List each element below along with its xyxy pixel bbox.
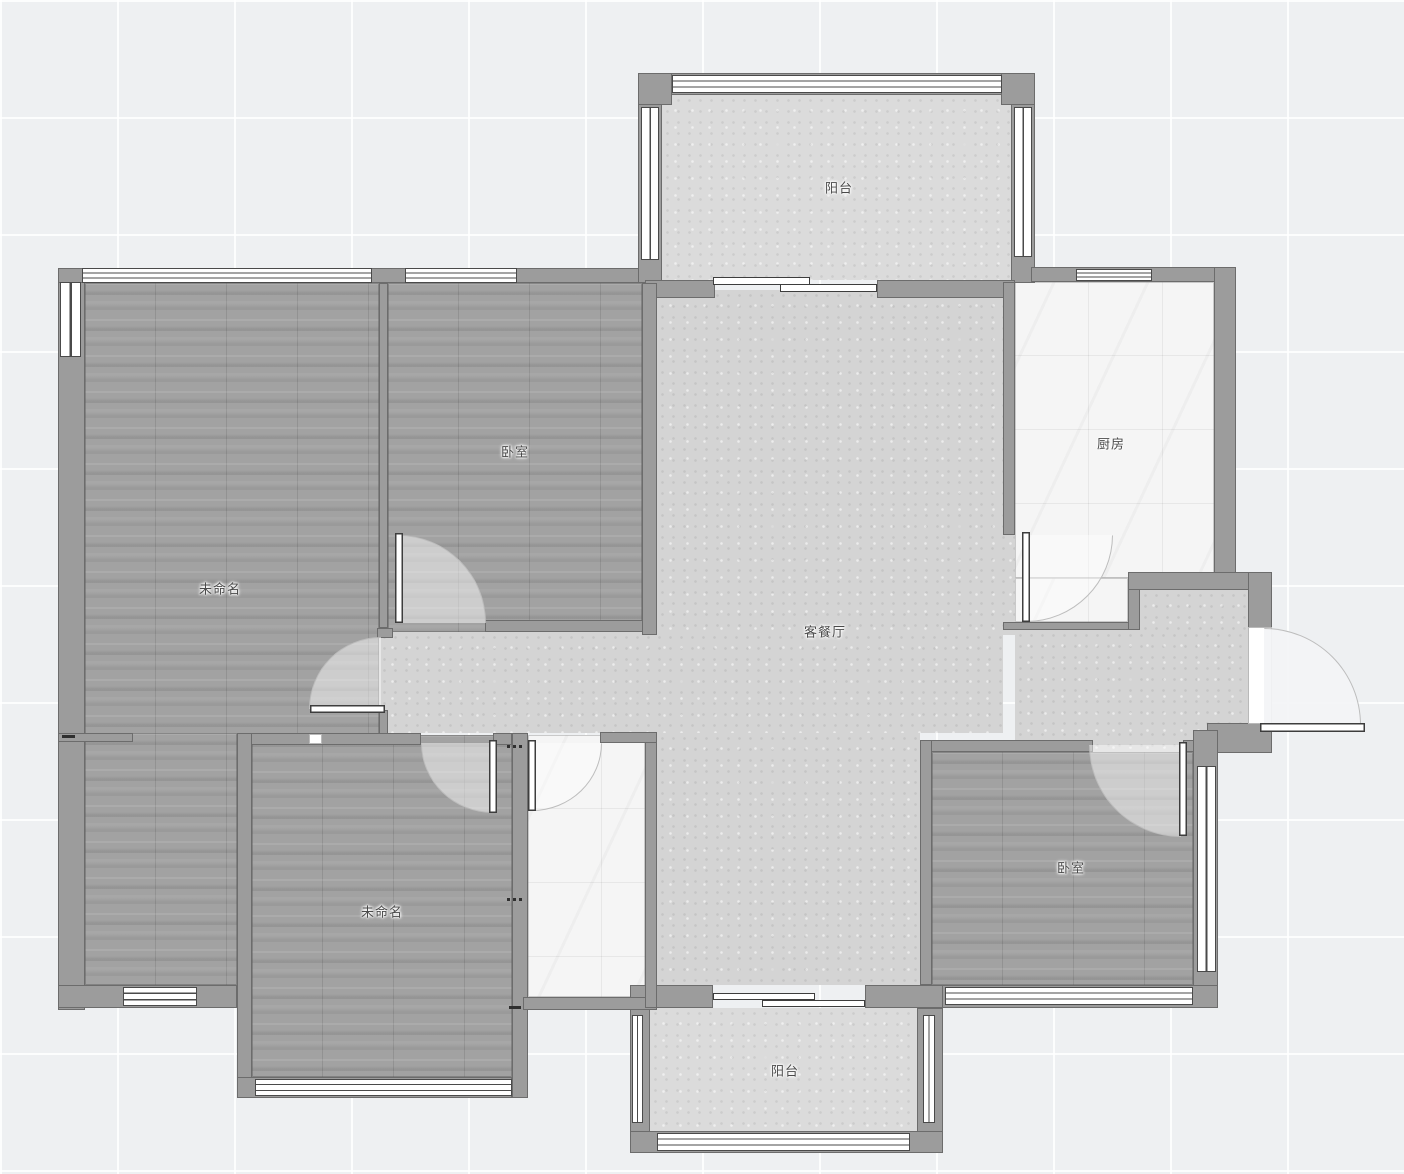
room-floor-living-lower[interactable] [657, 733, 920, 985]
sliding-door-balcony-bottom-panel[interactable] [713, 993, 815, 1000]
window[interactable] [1014, 107, 1032, 257]
wall-joint-mark [509, 1006, 521, 1009]
wall-segment[interactable] [642, 283, 657, 635]
window[interactable] [1076, 269, 1152, 281]
wall-segment[interactable] [865, 985, 943, 1008]
room-floor-living-upper[interactable] [657, 290, 1015, 635]
room-label-living-dining[interactable]: 客餐厅 [804, 622, 846, 641]
room-floor-entry-corridor[interactable] [1140, 590, 1248, 635]
room-label-balcony-top[interactable]: 阳台 [825, 178, 853, 197]
room-label-bedroom-top[interactable]: 卧室 [501, 442, 529, 461]
window[interactable] [641, 107, 659, 260]
wall-joint-mark [62, 735, 75, 738]
wall-segment[interactable] [379, 710, 388, 735]
wall-segment[interactable] [379, 283, 388, 628]
door-bedroom-bottom-leaf[interactable] [1179, 742, 1187, 836]
sliding-door-balcony-top-panel[interactable] [780, 284, 877, 292]
door-bathroom-leaf[interactable] [528, 740, 536, 811]
wall-segment[interactable] [1003, 622, 1140, 630]
room-floor-living-hall[interactable] [379, 632, 1003, 733]
window[interactable] [672, 75, 1002, 93]
window[interactable] [60, 282, 81, 357]
window[interactable] [123, 987, 197, 1006]
window[interactable] [945, 987, 1193, 1005]
wall-segment[interactable] [237, 733, 421, 745]
wall-segment[interactable] [1214, 267, 1236, 590]
wall-joint-mark [507, 745, 524, 748]
wall-segment[interactable] [58, 268, 85, 1010]
window[interactable] [1197, 766, 1216, 972]
floorplan-canvas: 阳台 卧室 未命名 厨房 客餐厅 未命名 卧室 阳台 [0, 0, 1404, 1174]
wall-segment[interactable] [645, 733, 657, 1008]
wall-segment[interactable] [1001, 73, 1035, 105]
wall-break [309, 734, 322, 744]
door-room-top-left-leaf[interactable] [310, 705, 385, 713]
sliding-door-balcony-bottom-panel[interactable] [762, 1000, 865, 1007]
wall-segment[interactable] [237, 733, 252, 1098]
door-entrance-arc [1264, 628, 1361, 725]
wall-segment[interactable] [638, 73, 672, 105]
wall-segment[interactable] [877, 280, 1015, 298]
window[interactable] [255, 1079, 512, 1096]
wall-segment[interactable] [1003, 282, 1015, 535]
wall-segment[interactable] [485, 620, 657, 632]
window[interactable] [657, 1133, 910, 1151]
room-label-room-bottom-left[interactable]: 未命名 [361, 902, 403, 921]
wall-segment[interactable] [920, 740, 1093, 752]
room-label-bedroom-bottom[interactable]: 卧室 [1057, 858, 1085, 877]
window[interactable] [632, 1015, 643, 1123]
wall-segment[interactable] [920, 740, 932, 985]
wall-segment[interactable] [1248, 572, 1272, 630]
window[interactable] [923, 1015, 935, 1123]
room-label-balcony-bottom[interactable]: 阳台 [771, 1061, 799, 1080]
door-bedroom-top-leaf[interactable] [395, 533, 403, 623]
room-label-room-top-left[interactable]: 未命名 [199, 579, 241, 598]
room-floor-kitchen[interactable] [1015, 282, 1214, 578]
room-label-kitchen[interactable]: 厨房 [1097, 434, 1125, 453]
door-entrance-leaf[interactable] [1260, 723, 1365, 732]
wall-segment[interactable] [600, 732, 657, 743]
room-floor-top-left-ext[interactable] [85, 733, 237, 985]
wall-segment[interactable] [523, 997, 657, 1010]
door-room-bottom-left-leaf[interactable] [489, 740, 497, 813]
window[interactable] [405, 268, 517, 283]
wall-segment[interactable] [512, 733, 528, 1098]
door-kitchen-leaf[interactable] [1022, 532, 1030, 622]
wall-joint-mark [507, 898, 524, 901]
window[interactable] [82, 268, 372, 283]
